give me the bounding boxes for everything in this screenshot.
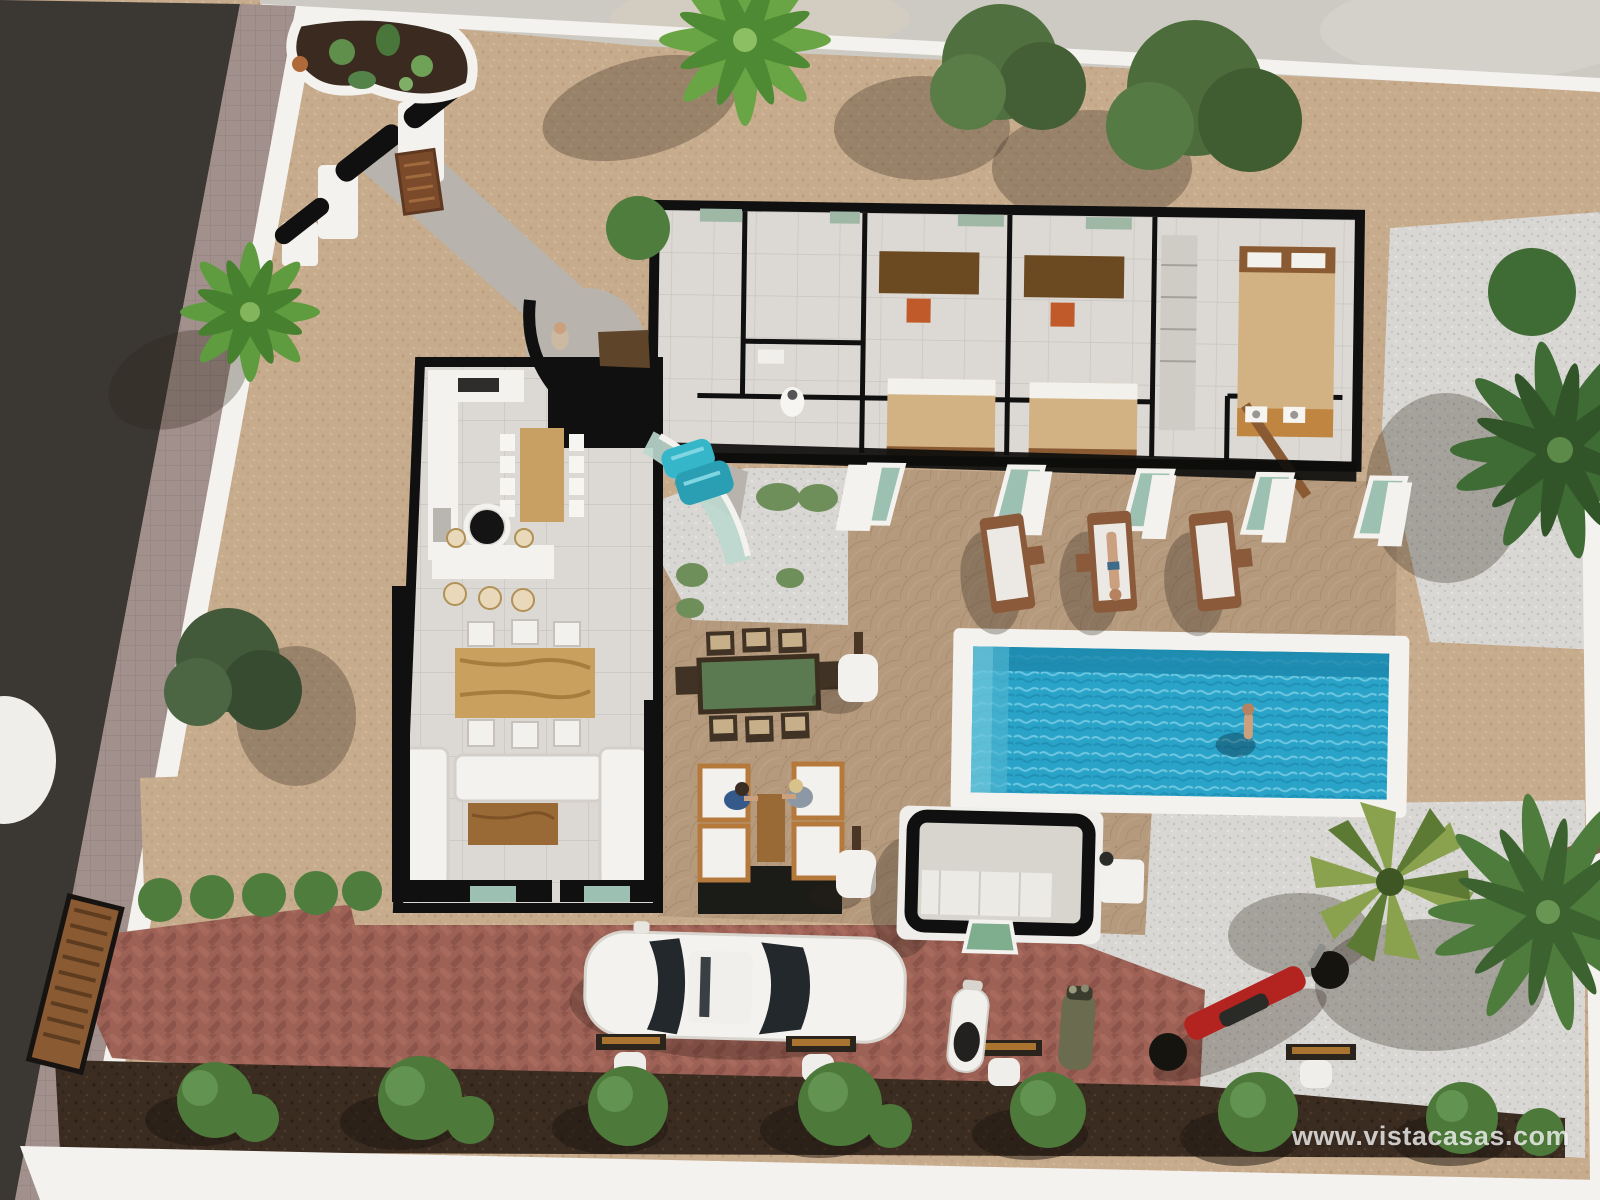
chair-orange [906,298,930,322]
outdoor-table [699,656,819,712]
side-table [1076,553,1095,572]
scene-canvas [0,0,1600,1200]
side-table [1233,548,1253,568]
planter [836,850,876,898]
desk [879,251,980,294]
armchair [700,826,748,880]
desk [1024,255,1125,298]
entry-door [598,330,650,368]
dining-table [455,648,595,718]
coffee-table [468,803,558,845]
sofa [455,755,603,801]
aerial-villa-render: www.vistacasas.com [0,0,1600,1200]
small-tree [606,196,670,260]
pool [950,628,1409,818]
mirror [633,921,649,933]
rear-wheel [1149,1033,1187,1071]
sofa [600,748,647,886]
sun-loungers [952,508,1259,639]
glass-sliver [470,886,516,902]
fire-bowl [470,510,504,544]
indoor-dining [455,620,595,748]
bush [1488,248,1576,336]
glass-sliver [584,886,630,902]
watermark: www.vistacasas.com [1292,1121,1570,1152]
pool-steps [971,646,994,792]
breakfast-bar [520,428,564,522]
island-counter [432,545,554,579]
side-table [1024,545,1044,565]
lounge-table [757,794,785,862]
car-roof [687,951,753,1025]
living-wing [392,330,660,908]
planter [838,654,878,702]
gate-sign [396,149,442,214]
armchair [794,824,842,878]
cooktop [455,378,499,392]
green-door [964,921,1017,952]
chair-orange [1050,302,1074,326]
palm-tree-left [180,242,320,382]
